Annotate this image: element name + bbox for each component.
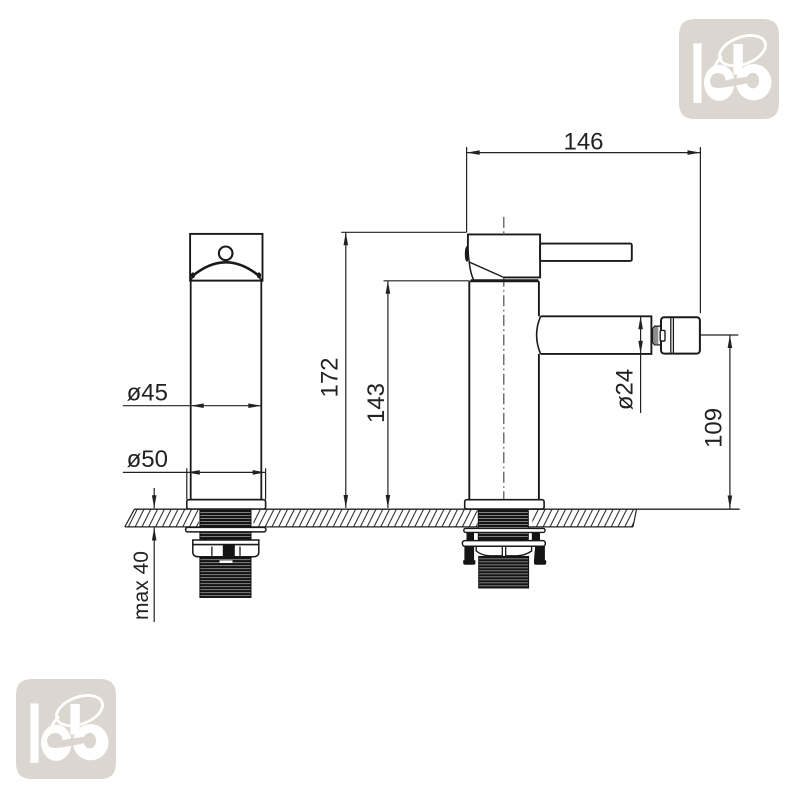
svg-text:172: 172 <box>317 357 344 397</box>
svg-text:ø45: ø45 <box>127 379 168 406</box>
svg-text:109: 109 <box>701 408 728 448</box>
svg-text:ø50: ø50 <box>127 446 168 473</box>
svg-text:146: 146 <box>563 129 603 156</box>
svg-text:143: 143 <box>363 383 390 423</box>
svg-text:ø24: ø24 <box>612 369 639 410</box>
svg-text:max 40: max 40 <box>130 551 153 620</box>
